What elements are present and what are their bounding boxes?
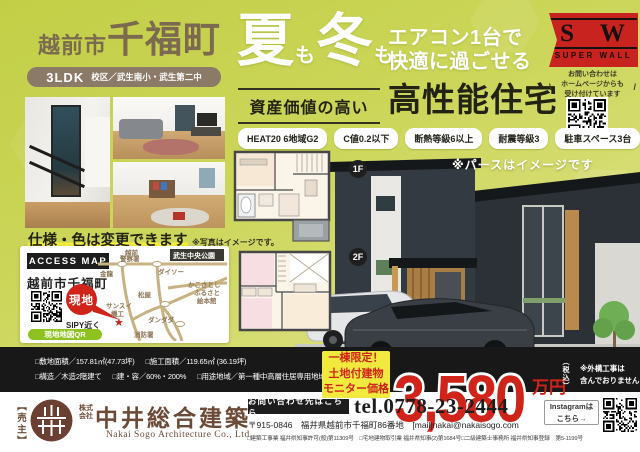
- location-city: 越前市: [38, 36, 107, 57]
- school-district: 校区／武生南小・武生第二中: [91, 71, 202, 83]
- company-name-en: Nakai Sogo Architecture Co., Ltd.: [106, 430, 253, 440]
- access-map-card: ACCESS MAP 越前市千福町 現地 SIPY近く 現地地図QR 越前 警察…: [20, 246, 229, 343]
- map-label-matsuya: 松屋: [138, 290, 152, 299]
- phone-number: tel.0778-23-2444: [354, 394, 508, 419]
- feature-badge: C値0.2以下: [334, 128, 398, 149]
- spec-floor-area: □施工面積／119.65㎡ (36.19坪): [145, 357, 246, 366]
- map-site-star: ★: [114, 317, 124, 329]
- superwall-note-line: ホームページからも: [545, 80, 640, 90]
- headline-mo: も: [294, 47, 316, 67]
- map-label-ehonkan: 絵本館: [197, 296, 217, 305]
- company-address: 〒915-0846 福井県越前市千福町86番地 [mail]nakai@naka…: [248, 419, 519, 431]
- spec-structure: □構造／木造2階建て: [35, 372, 102, 381]
- headline-winter: 冬: [316, 16, 373, 67]
- interior-photo-living: [113, 97, 225, 159]
- interior-photo-kids-room: [113, 162, 225, 228]
- spec-row-1: □敷地面積／157.81㎡(47.73坪) □施工面積／119.65㎡ (36.…: [35, 356, 255, 367]
- flyer-page: ※パースはイメージです 1F 2F 越前: [0, 0, 640, 452]
- street-map: 越前 警察署 金龍 ダイソー かこさとし ふるさと 絵本館 松屋 サンスイ 機工…: [98, 248, 227, 341]
- location-title: 越前市 千福町: [38, 22, 221, 57]
- instagram-line: Instagramは: [545, 401, 598, 412]
- instagram-box: Instagramは こちら→: [544, 400, 599, 425]
- headline-line2: 快適に過ごせる: [388, 50, 532, 74]
- ldk-school-badge: 3LDK 校区／武生南小・武生第二中: [27, 67, 221, 87]
- headline-summer: 夏: [237, 16, 294, 67]
- map-label-park: 武生中央公園: [173, 251, 215, 260]
- site-marker: 現地: [66, 284, 97, 315]
- exterior-note-line: 含んでおりません: [580, 375, 639, 387]
- spec-row-2: □構造／木造2階建て □建・容／60%・200% □用途地域／第一種中高層住居専…: [35, 371, 335, 382]
- instagram-qr-code: [602, 397, 638, 433]
- spec-coverage: □建・容／60%・200%: [113, 372, 187, 381]
- superwall-letters: S W: [550, 18, 637, 49]
- map-label-ehonkan: ふるさと: [194, 289, 220, 297]
- exterior-note-line: ※外構工事は: [580, 363, 639, 375]
- feature-badge: 駐車スペース3台: [555, 128, 640, 149]
- feature-badge: 断熱等級6以上: [405, 128, 482, 149]
- map-qr-label: 現地地図QR: [28, 329, 102, 340]
- map-label-daiso: ダイソー: [158, 267, 184, 276]
- feature-badge: 耐震等級3: [489, 128, 548, 149]
- high-performance-title: 高性能住宅: [388, 83, 558, 116]
- exterior-work-note: ※外構工事は 含んでおりません: [580, 363, 639, 387]
- corp-line: 会社: [79, 412, 93, 420]
- contact-label: お問い合わせ先はこちら: [248, 399, 349, 414]
- map-label-dandada: ダンダダ: [148, 315, 175, 324]
- price-tag-line: 土地付建物: [322, 367, 390, 382]
- interior-photo-stairwell: [25, 97, 110, 228]
- superwall-note: お問い合わせは ホームページからも 受け付けています: [545, 70, 640, 99]
- perspective-note: ※パースはイメージです: [452, 156, 594, 173]
- ldk-label: 3LDK: [46, 70, 84, 85]
- price-tax-note: （税込）: [560, 358, 570, 390]
- feature-badges: HEAT20 6地域G2 C値0.2以下 断熱等級6以上 耐震等級3 駐車スペー…: [238, 128, 640, 149]
- company-name: 中井総合建築: [95, 399, 251, 433]
- seller-label: 【売主】: [13, 401, 27, 447]
- floor-plan-2f: [238, 250, 332, 334]
- superwall-note-line: お問い合わせは: [545, 70, 640, 80]
- headline-line1: エアコン1台で: [388, 26, 532, 50]
- location-town: 千福町: [107, 22, 221, 57]
- headline-aircon: エアコン1台で 快適に過ごせる: [388, 26, 532, 75]
- map-label-fire-station: 消防署: [134, 330, 154, 339]
- price-tag-line: 一棟限定！: [322, 351, 390, 366]
- feature-badge: HEAT20 6地域G2: [238, 128, 327, 149]
- asset-value-label: 資産価値の高い: [238, 88, 380, 124]
- map-label-sansui: サンスイ: [106, 302, 132, 310]
- superwall-brand: SUPER WALL: [549, 51, 638, 60]
- floor-2f-badge: 2F: [349, 248, 367, 266]
- spec-zoning: □用途地域／第一種中高層住居専用地域: [197, 372, 325, 381]
- map-qr-code: [29, 289, 64, 324]
- map-label-police: 警察署: [120, 254, 140, 263]
- spec-site-area: □敷地面積／157.81㎡(47.73坪): [35, 357, 135, 366]
- map-label-ehonkan: かこさとし: [188, 281, 221, 289]
- corporation-prefix: 株式 会社: [79, 404, 93, 421]
- company-logo: [30, 399, 73, 442]
- access-map-title: ACCESS MAP: [27, 253, 109, 269]
- license-text: □建築工事業 福井県知事許可(般)第11309号 □宅地建物取引業 福井県知事(…: [247, 433, 583, 442]
- instagram-line: こちら→: [545, 413, 598, 424]
- headline-summer-winter: 夏 も 冬 も: [237, 16, 395, 67]
- map-label-kinryu: 金龍: [99, 269, 114, 278]
- superwall-ribbon: S W SUPER WALL: [549, 13, 638, 67]
- limited-price-tag: 一棟限定！ 土地付建物 モニター価格: [322, 351, 390, 398]
- floor-1f-badge: 1F: [349, 160, 367, 178]
